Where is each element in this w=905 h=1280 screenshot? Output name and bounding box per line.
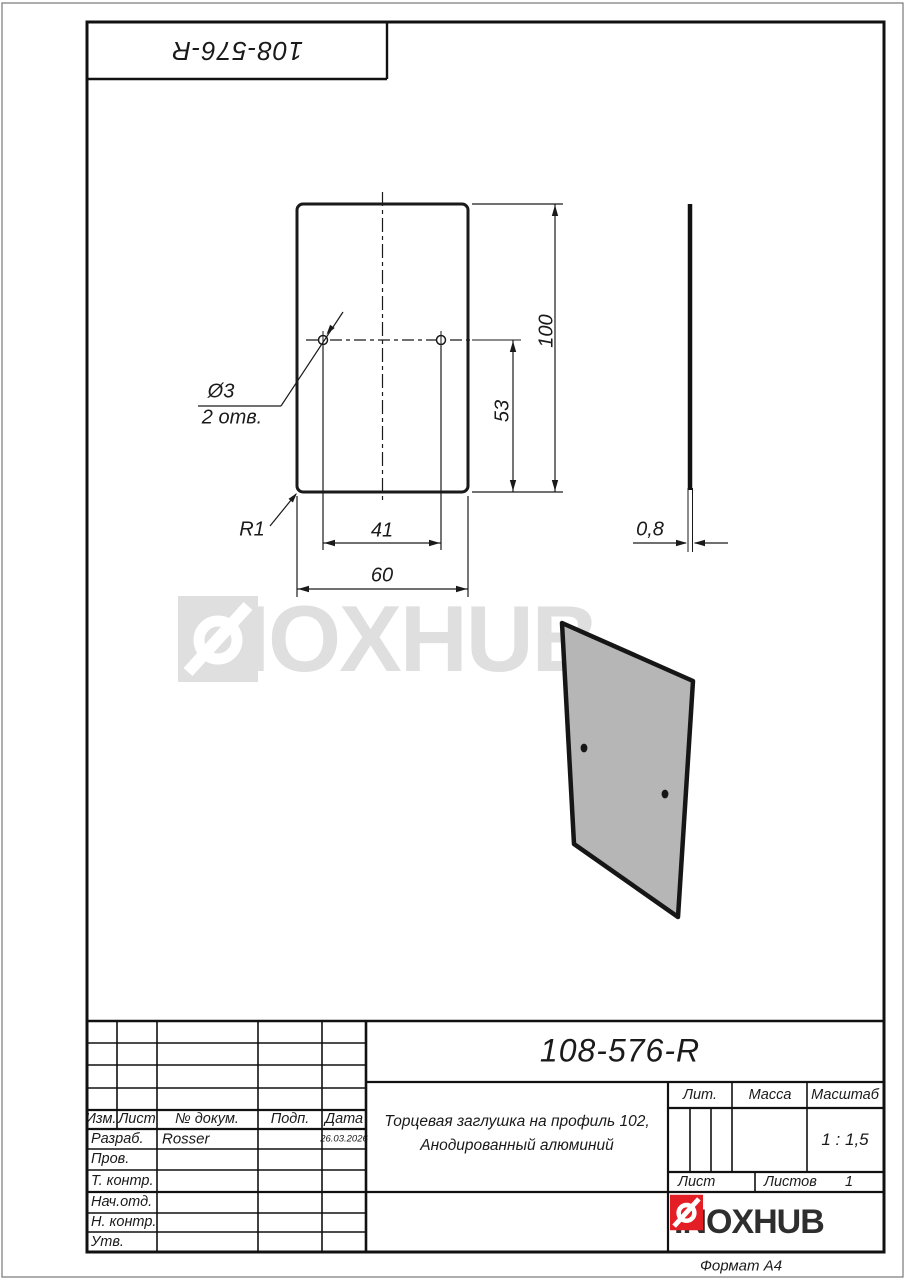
dim-hole-spacing: 41 <box>371 520 393 543</box>
dim-height: 100 <box>536 314 559 347</box>
part-hole-1 <box>581 744 588 753</box>
dim-hole-dia: Ø3 <box>208 381 235 404</box>
designation: 108-576-R <box>540 1033 700 1070</box>
part-hole-2 <box>662 790 669 799</box>
top-left-code: 108-576-R <box>87 22 387 79</box>
hole-left <box>319 336 328 345</box>
format-label: Формат А4 <box>700 1258 782 1275</box>
dim-corner-radius: R1 <box>239 519 265 542</box>
row-label-nach-otd: Нач.отд. <box>91 1194 152 1210</box>
side-view <box>633 204 728 552</box>
header-sheet: Лист <box>118 1111 155 1127</box>
inoxhub-logo-icon <box>670 1194 703 1231</box>
scale-value: 1 : 1,5 <box>821 1130 868 1150</box>
row-date-razrab: 26.03.2026 <box>320 1134 368 1145</box>
header-scale: Масштаб <box>811 1087 879 1103</box>
hole-right <box>437 336 446 345</box>
dimension-arrows <box>289 205 559 592</box>
header-mass: Масса <box>749 1087 792 1103</box>
dim-hole-offset: 53 <box>492 400 515 422</box>
drawing-sheet: INOXHUB <box>0 0 905 1280</box>
inoxhub-watermark-icon <box>178 596 258 682</box>
dim-thickness: 0,8 <box>636 519 664 542</box>
company-logo: INOXHUB <box>670 1194 886 1250</box>
header-izm: Изм. <box>86 1111 117 1127</box>
watermark: INOXHUB <box>178 596 597 682</box>
header-lit: Лит. <box>683 1087 717 1103</box>
header-sheets: Листов <box>764 1174 817 1190</box>
header-date: Дата <box>325 1111 363 1127</box>
header-sheet2: Лист <box>678 1174 715 1190</box>
row-label-n-kontr: Н. контр. <box>91 1214 156 1230</box>
row-label-t-kontr: Т. контр. <box>91 1173 154 1189</box>
description-line1: Торцевая заглушка на профиль 102, <box>384 1113 649 1131</box>
row-label-prov: Пров. <box>91 1151 129 1167</box>
row-label-razrab: Разраб. <box>91 1131 143 1147</box>
sheets-value: 1 <box>845 1174 853 1190</box>
row-name-razrab: Rosser <box>162 1131 210 1148</box>
description-line2: Анодированный алюминий <box>420 1137 614 1155</box>
header-doc-no: № докум. <box>175 1111 239 1127</box>
front-view <box>297 192 521 504</box>
header-sign: Подп. <box>271 1111 310 1127</box>
row-label-utv: Утв. <box>91 1234 124 1250</box>
dim-hole-count: 2 отв. <box>202 407 262 430</box>
dim-width: 60 <box>371 565 393 588</box>
